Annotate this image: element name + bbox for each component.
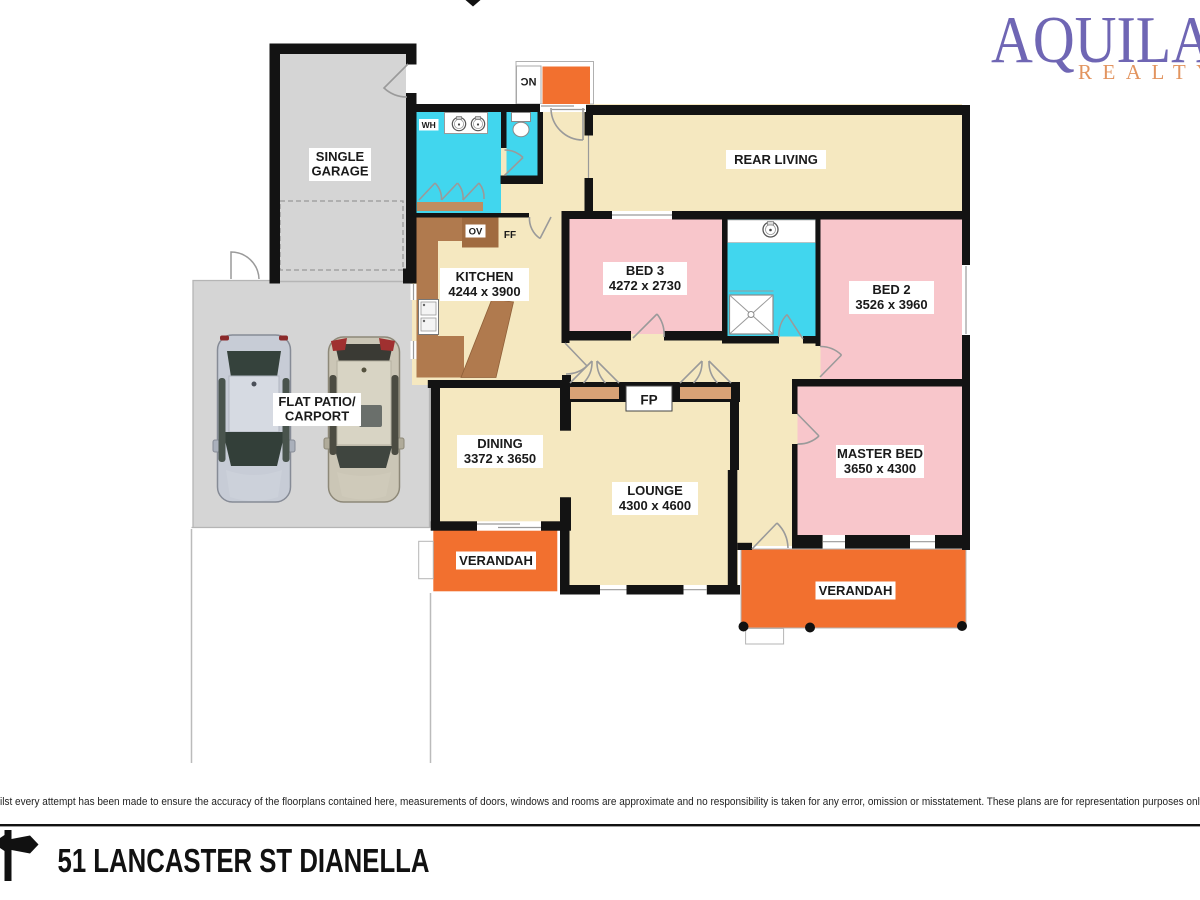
svg-text:3650 x 4300: 3650 x 4300 bbox=[844, 461, 916, 476]
svg-text:OV: OV bbox=[469, 227, 483, 238]
svg-text:CARPORT: CARPORT bbox=[285, 409, 349, 424]
svg-text:Whilst every attempt has been: Whilst every attempt has been made to en… bbox=[0, 796, 1200, 808]
svg-text:REAR LIVING: REAR LIVING bbox=[734, 152, 818, 167]
svg-text:4244 x 3900: 4244 x 3900 bbox=[448, 284, 520, 299]
svg-text:NC: NC bbox=[521, 75, 537, 87]
svg-text:FLAT PATIO/: FLAT PATIO/ bbox=[278, 394, 356, 409]
svg-text:51 LANCASTER ST DIANELLA: 51 LANCASTER ST DIANELLA bbox=[58, 843, 430, 880]
svg-text:3372 x 3650: 3372 x 3650 bbox=[464, 451, 536, 466]
svg-text:BED 2: BED 2 bbox=[872, 282, 910, 297]
svg-text:FP: FP bbox=[640, 393, 657, 408]
svg-text:FF: FF bbox=[504, 230, 516, 241]
svg-text:WH: WH bbox=[422, 120, 436, 130]
svg-text:4300 x 4600: 4300 x 4600 bbox=[619, 498, 691, 513]
svg-text:BED 3: BED 3 bbox=[626, 263, 664, 278]
svg-text:4272 x 2730: 4272 x 2730 bbox=[609, 278, 681, 293]
svg-text:LOUNGE: LOUNGE bbox=[627, 483, 683, 498]
svg-text:3526 x 3960: 3526 x 3960 bbox=[855, 297, 927, 312]
svg-text:REALTY: REALTY bbox=[1078, 60, 1200, 84]
svg-text:VERANDAH: VERANDAH bbox=[819, 583, 893, 598]
svg-text:DINING: DINING bbox=[477, 436, 523, 451]
svg-text:GARAGE: GARAGE bbox=[311, 164, 368, 179]
svg-text:VERANDAH: VERANDAH bbox=[459, 553, 533, 568]
svg-text:SINGLE: SINGLE bbox=[316, 149, 365, 164]
svg-text:KITCHEN: KITCHEN bbox=[456, 269, 514, 284]
svg-text:MASTER BED: MASTER BED bbox=[837, 446, 923, 461]
